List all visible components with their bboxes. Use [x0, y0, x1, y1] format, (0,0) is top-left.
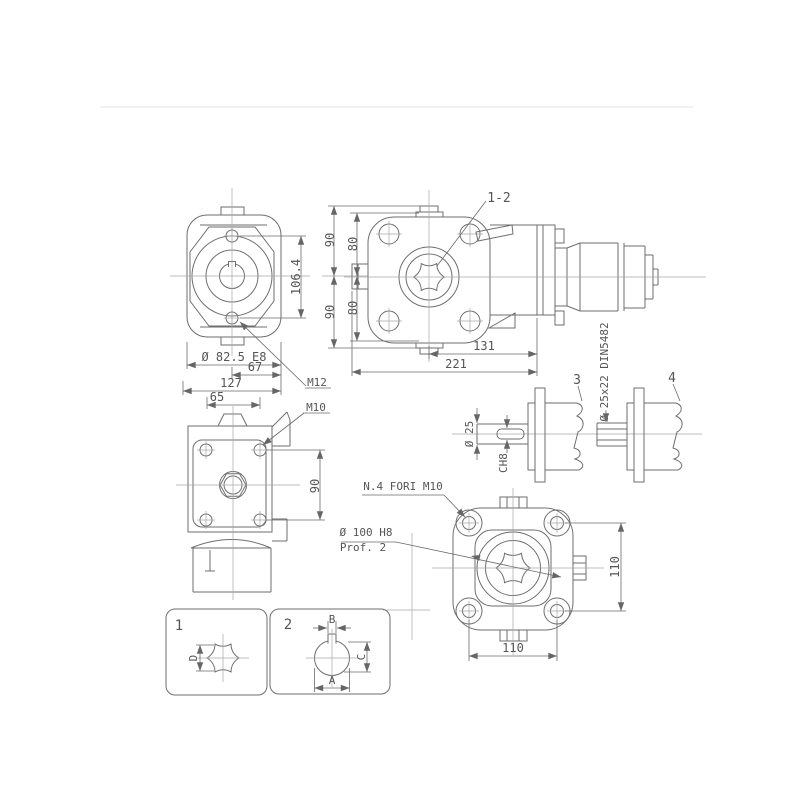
- dim-b: B: [329, 613, 336, 626]
- dim-90-side: 90: [308, 479, 322, 493]
- top-boss: [218, 414, 247, 426]
- callout-input-bore: 1-2: [487, 191, 510, 206]
- dim-110-right: 110: [608, 556, 622, 578]
- dim-110-bottom: 110: [502, 641, 524, 655]
- dim-90-bottom: 90: [323, 305, 337, 319]
- technical-drawing-page: Ø 82.5 E8 67 127 65 106.4 90 80 90 80: [0, 0, 800, 800]
- break-edge: [574, 403, 583, 470]
- callout-m10: M10: [306, 401, 326, 414]
- bottom-lug: [221, 337, 244, 345]
- dim-c: C: [355, 654, 368, 661]
- callout-m12: M12: [307, 376, 327, 389]
- top-lug: [221, 207, 244, 215]
- spline-spec-label: Ø 25x22 DIN5482: [598, 322, 611, 422]
- dim-65: 65: [210, 390, 224, 404]
- side-plug: [352, 264, 368, 289]
- dim-90-top: 90: [323, 233, 337, 247]
- dim-d: D: [187, 655, 200, 662]
- gearbox-front-view: 1-2: [344, 190, 706, 362]
- detail1-label: 1: [175, 618, 183, 634]
- detail1-spline-profile: D: [187, 634, 249, 682]
- dim-80-top: 80: [346, 237, 360, 251]
- output-flange: [537, 225, 555, 315]
- callout-spigot-dia: Ø 100 H8: [340, 526, 393, 539]
- gearbox-technical-drawing: Ø 82.5 E8 67 127 65 106.4 90 80 90 80: [0, 0, 800, 800]
- break-edge: [673, 403, 682, 470]
- dim-ch8: CH8: [497, 453, 510, 473]
- callout-leader: [437, 201, 486, 266]
- callout-holes-note: N.4 FORI M10: [363, 480, 442, 493]
- dim-dia25: Ø 25: [463, 421, 476, 448]
- shaft-option-3-view: Ø 25 CH8 3: [463, 373, 583, 482]
- dim-221: 221: [445, 357, 467, 371]
- callout-option4: 4: [668, 371, 676, 386]
- detail-boxes: 1 2 D B C A: [166, 609, 390, 695]
- bell-arc: [191, 540, 271, 549]
- dim-131: 131: [473, 339, 495, 353]
- breather-plug: [476, 225, 513, 241]
- callout-spigot-depth: Prof. 2: [340, 541, 386, 554]
- front-view-dimensions: Ø 82.5 E8 67 127 65 106.4 90 80 90 80: [183, 206, 421, 409]
- detail2-label: 2: [284, 617, 292, 633]
- callout-option3: 3: [573, 373, 581, 388]
- dim-a: A: [329, 674, 336, 687]
- dim-106-4: 106.4: [289, 259, 303, 295]
- rear-view: N.4 FORI M10 Ø 100 H8 Prof. 2 110 110: [340, 480, 626, 661]
- plan-view-dimensions: 131 221: [352, 291, 537, 376]
- detail2-keyed-profile: B C A: [306, 613, 371, 692]
- side-body: [188, 426, 272, 532]
- dim-127: 127: [220, 376, 242, 390]
- spline-spec-text: Ø 25x22 DIN5482: [598, 322, 611, 421]
- shaft-option-views: Ø 25 CH8 3 4: [452, 371, 702, 482]
- dim-67: 67: [248, 360, 262, 374]
- dim-80-bottom: 80: [346, 301, 360, 315]
